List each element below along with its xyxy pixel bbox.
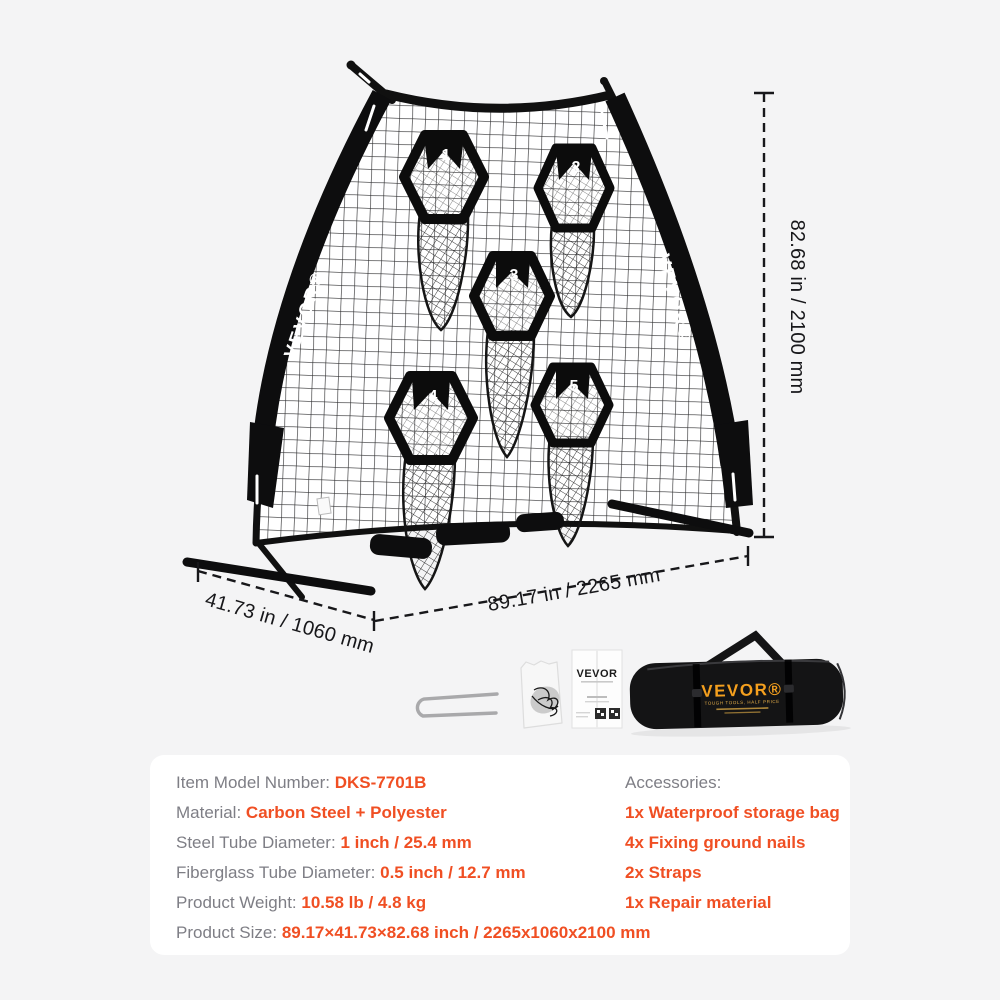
spec-value: 1x Waterproof storage bag bbox=[625, 803, 840, 822]
spec-value: Carbon Steel + Polyester bbox=[246, 803, 447, 822]
spec-value: 1x Repair material bbox=[625, 893, 771, 912]
depth-dimension-label: 41.73 in / 1060 mm bbox=[203, 589, 377, 658]
spec-label: Steel Tube Diameter: bbox=[176, 833, 336, 852]
spec-row: 1x Repair material bbox=[625, 888, 840, 918]
target-number-3: 3 bbox=[510, 267, 519, 284]
spec-column-right: Accessories: 1x Waterproof storage bag 4… bbox=[625, 768, 840, 918]
instruction-manual: VEVOR bbox=[572, 650, 622, 728]
target-number-1: 1 bbox=[442, 147, 451, 164]
spec-row: Product Weight: 10.58 lb / 4.8 kg bbox=[176, 888, 650, 918]
hardware-bag bbox=[521, 661, 564, 728]
spec-row: 1x Waterproof storage bag bbox=[625, 798, 840, 828]
target-number-2: 2 bbox=[572, 159, 581, 176]
spec-label: Item Model Number: bbox=[176, 773, 330, 792]
pole-cap-left bbox=[347, 61, 356, 70]
storage-bag: VEVOR® TOUGH TOOLS, HALF PRICE bbox=[628, 633, 851, 739]
spec-value: 10.58 lb / 4.8 kg bbox=[301, 893, 426, 912]
spec-value: DKS-7701B bbox=[335, 773, 427, 792]
spec-label: Product Weight: bbox=[176, 893, 297, 912]
spec-row: Product Size: 89.17×41.73×82.68 inch / 2… bbox=[176, 918, 650, 948]
spec-row: Item Model Number: DKS-7701B bbox=[176, 768, 650, 798]
spec-label: Accessories: bbox=[625, 773, 721, 792]
ground-nail bbox=[417, 694, 497, 716]
target-number-4: 4 bbox=[429, 388, 438, 405]
spec-value: 0.5 inch / 12.7 mm bbox=[380, 863, 526, 882]
manual-brand-logo: VEVOR bbox=[576, 668, 617, 680]
spec-label: Product Size: bbox=[176, 923, 277, 942]
spec-row: Accessories: bbox=[625, 768, 840, 798]
spec-row: 2x Straps bbox=[625, 858, 840, 888]
spec-row: 4x Fixing ground nails bbox=[625, 828, 840, 858]
spec-panel: Item Model Number: DKS-7701B Material: C… bbox=[150, 755, 850, 955]
spec-label: Material: bbox=[176, 803, 241, 822]
spec-column-left: Item Model Number: DKS-7701B Material: C… bbox=[176, 768, 650, 948]
height-dimension-label: 82.68 in / 2100 mm bbox=[786, 220, 808, 395]
target-number-5: 5 bbox=[570, 378, 579, 395]
spec-value: 1 inch / 25.4 mm bbox=[340, 833, 471, 852]
width-dimension-label: 89.17 in / 2265 mm bbox=[486, 564, 662, 616]
pole-cap-right bbox=[600, 77, 608, 85]
spec-label: Fiberglass Tube Diameter: bbox=[176, 863, 375, 882]
spec-row: Fiberglass Tube Diameter: 0.5 inch / 12.… bbox=[176, 858, 650, 888]
spec-row: Steel Tube Diameter: 1 inch / 25.4 mm bbox=[176, 828, 650, 858]
product-illustration: VEVOR® VEVOR® 1 2 3 bbox=[0, 0, 1000, 760]
spec-value: 2x Straps bbox=[625, 863, 702, 882]
care-label-tag bbox=[317, 497, 331, 515]
spec-row: Material: Carbon Steel + Polyester bbox=[176, 798, 650, 828]
trainer-net: VEVOR® VEVOR® 1 2 3 bbox=[187, 61, 753, 598]
bag-brand-logo: VEVOR® bbox=[701, 680, 783, 701]
spec-value: 89.17×41.73×82.68 inch / 2265x1060x2100 … bbox=[282, 923, 651, 942]
spec-value: 4x Fixing ground nails bbox=[625, 833, 805, 852]
